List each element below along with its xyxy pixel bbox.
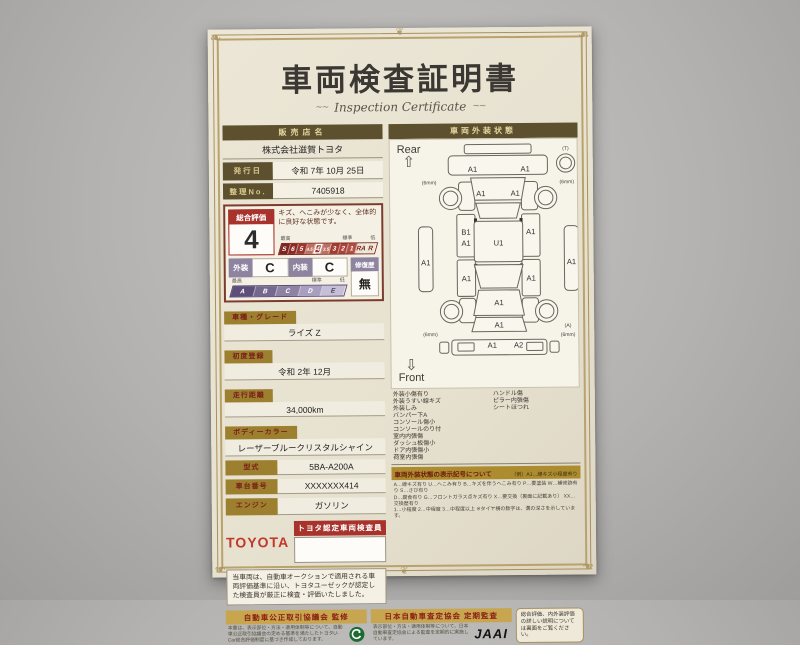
- jaai-box: 日本自動車査定協会 定期監査 表示部位・方法・適用体制等について、日本自動車査定…: [371, 608, 512, 644]
- car-condition-diagram: (T)A1A1(6mm)(6mm)A1A1B1A1A1A1A1A1A1U1A1A…: [412, 140, 580, 376]
- legend-lines: A…線キズ有り U…へこみ有り B…キズを伴うへこみ有り P…要塗装 W…補修跡…: [392, 478, 581, 519]
- page-subtitle: Inspection Certificate: [221, 98, 579, 115]
- ref-no-value: 7405918: [273, 182, 383, 199]
- svg-text:A1: A1: [468, 165, 477, 174]
- field-label: ボディーカラー: [225, 425, 297, 439]
- ref-no-row: 整理No. 7405918: [223, 182, 383, 199]
- exterior-interior-row: 外装 C 内装 C: [229, 257, 348, 277]
- defect-list-left: 外装小傷有り外装うすい線キズ外装しみバンパー下Aコンソール傷小コンソールのり付室…: [393, 391, 494, 462]
- certified-inspector-badge: トヨタ認定車両検査員: [294, 520, 386, 536]
- svg-text:A1: A1: [494, 298, 503, 307]
- back-side-note: 総合評価、内外装評価の詳しい説明については裏面をご覧ください。: [516, 608, 584, 643]
- jaai-text: 表示部位・方法・適用体制等について、日本自動車査定協会による監査を定期的に実施し…: [373, 625, 472, 643]
- ref-no-label: 整理No.: [223, 183, 273, 199]
- field-label: 走行距離: [225, 389, 273, 402]
- field-value: ライズ Z: [224, 323, 384, 341]
- defect-list-right: ハンドル傷ピラー内張傷シートほつれ: [493, 390, 579, 461]
- svg-text:A1: A1: [476, 189, 485, 198]
- svg-text:A1: A1: [421, 258, 430, 267]
- scale-low-label: 低: [370, 234, 375, 241]
- svg-text:(A): (A): [565, 323, 572, 329]
- toyota-logo: TOYOTA: [226, 534, 289, 551]
- interior-grade: C: [312, 257, 348, 276]
- field-first-registration: 初度登録 令和 2年 12月: [224, 344, 384, 380]
- svg-text:A1: A1: [495, 320, 504, 329]
- field-chassis-no: 車台番号 XXXXXXX414: [226, 478, 386, 494]
- field-value: ガソリン: [278, 497, 386, 515]
- scale-low-label: 低: [340, 276, 345, 283]
- svg-text:U1: U1: [494, 238, 504, 247]
- exterior-grade: C: [253, 258, 289, 277]
- interior-label: 内装: [288, 258, 312, 277]
- symbol-legend: 車両外装状態の表示記号について （例）A1…線キズ小程度有り A…線キズ有り U…: [391, 465, 580, 519]
- svg-text:A1: A1: [461, 239, 470, 248]
- corner-ornament: ❧: [578, 26, 590, 43]
- left-column: 販売店名 株式会社滋賀トヨタ 発行日 令和 7年 10月 25日 整理No. 7…: [222, 124, 386, 606]
- green-council-icon: [349, 626, 365, 642]
- overall-grade-label: 総合評価: [229, 210, 273, 224]
- issue-date-label: 発行日: [223, 162, 273, 180]
- field-label: 初度登録: [224, 350, 272, 363]
- fair-trade-title: 自動車公正取引協議会 監修: [226, 610, 367, 625]
- svg-text:A1: A1: [526, 227, 535, 236]
- field-model-code: 型式 5BA-A200A: [225, 459, 385, 475]
- top-ornament: ❦: [395, 27, 403, 38]
- fair-trade-text: 本書は、表示部位・方法・適用体制等について、自動車公正取引協議会の定める基準を満…: [228, 626, 346, 644]
- scale-standard-label: 標準: [312, 277, 322, 284]
- dealer-header: 販売店名: [222, 124, 382, 140]
- interior-scale-labels: 最高 標準 低: [229, 276, 348, 284]
- defect-list: 外装小傷有り外装うすい線キズ外装しみバンパー下Aコンソール傷小コンソールのり付室…: [391, 387, 581, 465]
- jaai-logo: JAAI: [474, 626, 510, 641]
- svg-text:A1: A1: [511, 189, 520, 198]
- scale-best-label: 最高: [232, 277, 242, 284]
- field-value: 令和 2年 12月: [225, 362, 385, 380]
- certificate-paper: ❧ ❧ ❧ ❧ ❦ ❦ 車両検査証明書 Inspection Certifica…: [208, 26, 597, 577]
- svg-text:A1: A1: [520, 164, 529, 173]
- jaai-title: 日本自動車査定協会 定期監査: [371, 608, 512, 623]
- field-mileage: 走行距離 34,000km: [225, 383, 385, 417]
- scale-standard-label: 標準: [342, 234, 352, 241]
- inspector-stamp-box: [294, 536, 386, 563]
- exterior-condition-header: 車両外装状態: [388, 122, 577, 139]
- field-body-color: ボディーカラー レーザーブルークリスタルシャイン: [225, 420, 385, 456]
- inspection-statement: 当車両は、自動車オークションで適用される車両評価基準に沿い、トヨタユーゼックが認…: [226, 568, 386, 606]
- legend-title: 車両外装状態の表示記号について: [394, 468, 491, 479]
- overall-comment: キズ、へこみが少なく、全体的に良好な状態です。: [277, 208, 378, 227]
- interior-grade-scale: ABCDE: [229, 284, 347, 297]
- field-engine: エンジン ガソリン: [226, 497, 386, 515]
- overall-grade-scale: S654.543.5321RAR: [278, 242, 378, 255]
- field-label: 型式: [225, 460, 277, 475]
- corner-ornament: ❧: [210, 30, 222, 47]
- field-value: レーザーブルークリスタルシャイン: [225, 438, 385, 456]
- legend-example: （例）A1…線キズ小程度有り: [511, 470, 577, 478]
- car-diagram-panel: Rear ⇧ ⇩ Front: [389, 137, 580, 389]
- repair-history-label: 修復歴: [351, 257, 379, 271]
- field-label: 車台番号: [226, 479, 278, 494]
- repair-history-box: 修復歴 無: [351, 257, 379, 296]
- corner-ornament: ❧: [583, 557, 595, 574]
- fair-trade-box: 自動車公正取引協議会 監修 本書は、表示部位・方法・適用体制等について、自動車公…: [226, 610, 367, 645]
- field-value: 34,000km: [225, 401, 385, 417]
- repair-history-value: 無: [351, 271, 379, 296]
- right-column: 車両外装状態 Rear ⇧ ⇩ Front: [388, 122, 581, 604]
- field-value: XXXXXXX414: [278, 478, 386, 494]
- dealer-name: 株式会社滋賀トヨタ: [223, 139, 383, 159]
- footer-row: 自動車公正取引協議会 監修 本書は、表示部位・方法・適用体制等について、自動車公…: [226, 608, 584, 645]
- svg-text:(6mm): (6mm): [423, 332, 438, 338]
- scale-best-label: 最高: [280, 235, 290, 242]
- field-label: 車種・グレード: [224, 310, 296, 324]
- issue-date-row: 発行日 令和 7年 10月 25日: [223, 161, 383, 180]
- inspector-block: TOYOTA トヨタ認定車両検査員: [226, 520, 386, 563]
- svg-text:(6mm): (6mm): [561, 332, 576, 338]
- overall-scale-labels: 最高 標準 低: [277, 234, 378, 242]
- svg-text:A1: A1: [462, 274, 471, 283]
- svg-text:A2: A2: [514, 340, 523, 349]
- svg-text:A1: A1: [526, 274, 535, 283]
- svg-text:(T): (T): [562, 146, 569, 152]
- page-title: 車両検査証明書: [221, 61, 579, 98]
- field-value: 5BA-A200A: [277, 459, 385, 475]
- overall-grade-box: 総合評価 4: [228, 209, 274, 255]
- issue-date-value: 令和 7年 10月 25日: [273, 161, 383, 180]
- svg-text:(6mm): (6mm): [422, 180, 437, 186]
- svg-text:A1: A1: [567, 257, 576, 266]
- svg-text:B1: B1: [461, 228, 470, 237]
- evaluation-box: 総合評価 4 キズ、へこみが少なく、全体的に良好な状態です。 最高 標準 低: [223, 203, 384, 302]
- svg-text:A1: A1: [488, 341, 497, 350]
- exterior-label: 外装: [229, 258, 253, 277]
- field-model-grade: 車種・グレード ライズ Z: [224, 305, 384, 341]
- overall-grade-value: 4: [229, 224, 273, 254]
- svg-text:(6mm): (6mm): [559, 179, 574, 185]
- title-block: 車両検査証明書 Inspection Certificate: [221, 61, 579, 115]
- field-label: エンジン: [226, 498, 278, 515]
- photo-background: ❧ ❧ ❧ ❧ ❦ ❦ 車両検査証明書 Inspection Certifica…: [0, 0, 800, 600]
